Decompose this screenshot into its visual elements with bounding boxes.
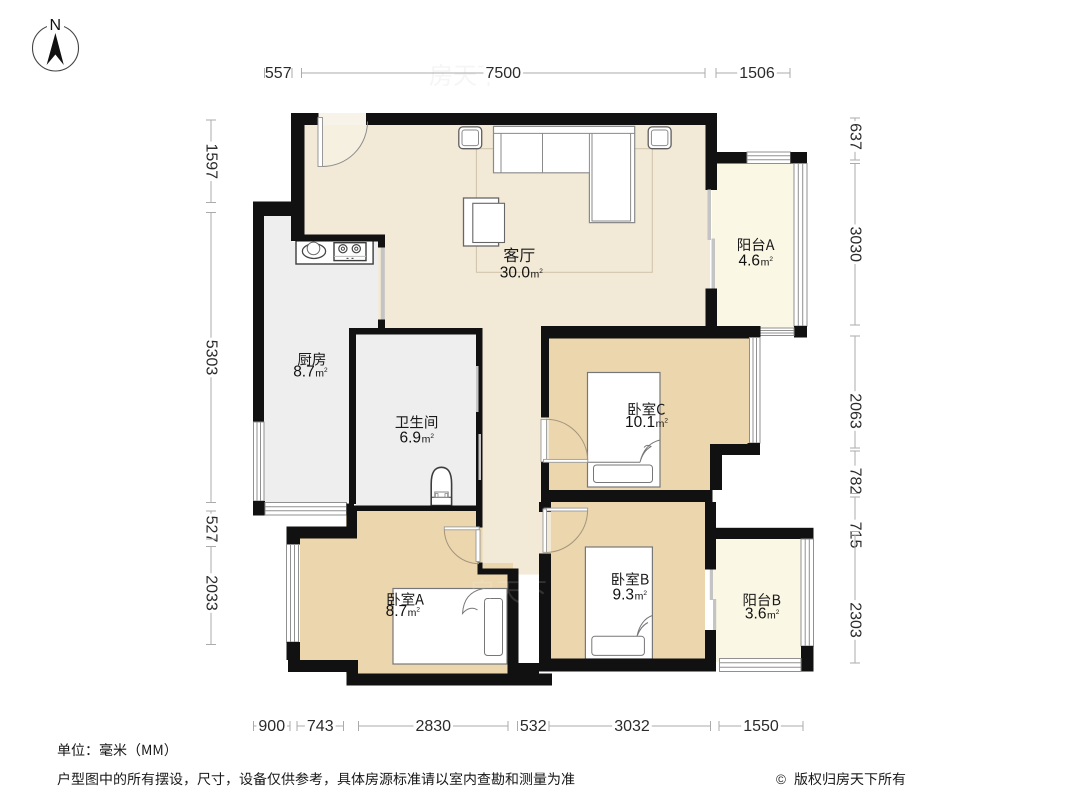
svg-text:N: N [50, 17, 62, 34]
svg-text:743: 743 [307, 718, 334, 735]
svg-text:2830: 2830 [415, 718, 451, 735]
svg-text:1550: 1550 [743, 718, 779, 735]
svg-text:©: © [776, 772, 786, 787]
svg-text:3030: 3030 [847, 226, 864, 262]
svg-text:637: 637 [847, 123, 864, 150]
svg-text:1506: 1506 [739, 65, 775, 82]
svg-text:5303: 5303 [203, 340, 220, 376]
svg-text:2033: 2033 [203, 575, 220, 611]
svg-text:557: 557 [265, 65, 292, 82]
svg-text:2063: 2063 [847, 393, 864, 429]
svg-text:782: 782 [847, 468, 864, 495]
svg-text:3032: 3032 [614, 718, 650, 735]
svg-text:527: 527 [203, 516, 220, 543]
svg-text:532: 532 [520, 718, 547, 735]
svg-text:2303: 2303 [847, 602, 864, 638]
svg-text:1597: 1597 [203, 143, 220, 179]
svg-text:7500: 7500 [485, 65, 521, 82]
svg-text:900: 900 [258, 718, 285, 735]
